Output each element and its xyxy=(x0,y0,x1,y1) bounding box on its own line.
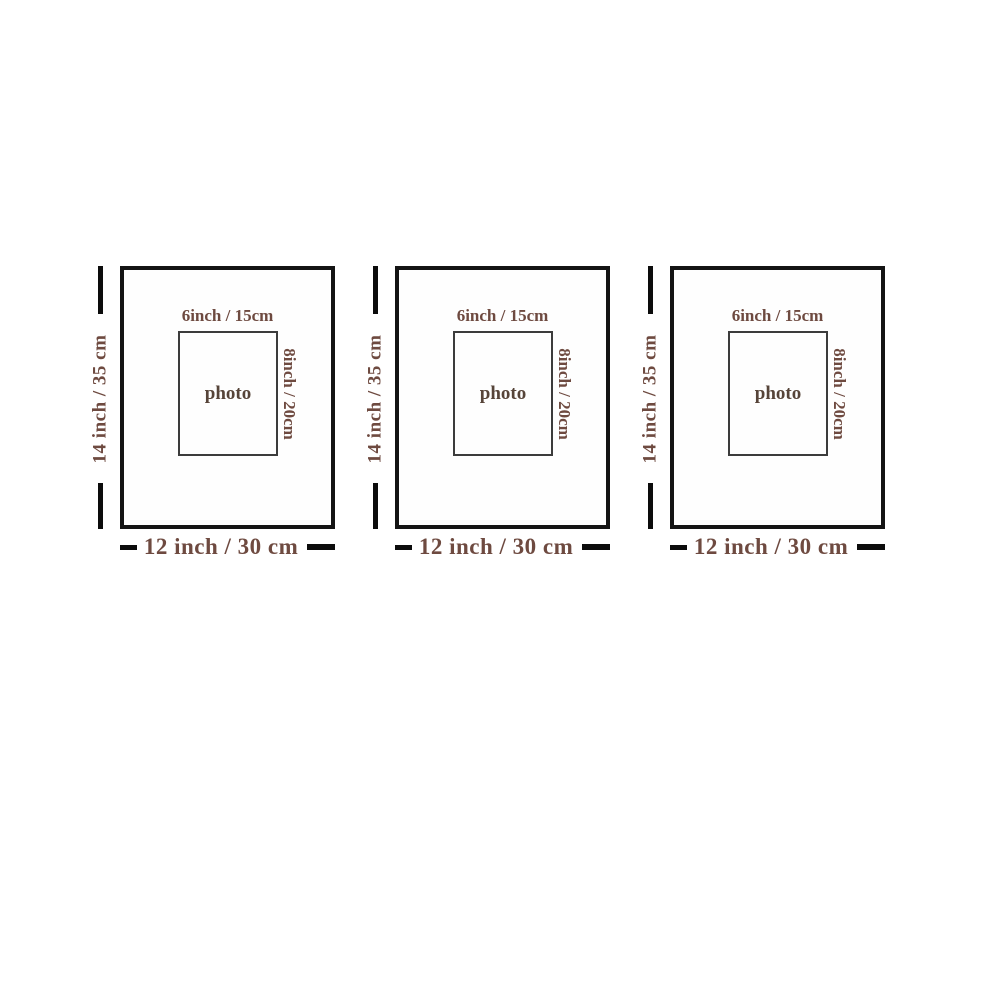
dimension-tick-bottom xyxy=(98,483,103,529)
dimension-dash-right xyxy=(582,544,610,550)
photo-label: photo xyxy=(480,383,526,405)
dimension-tick-top xyxy=(648,266,653,314)
opening-height-label: 8inch / 20cm xyxy=(829,348,849,440)
photo-label: photo xyxy=(755,383,801,405)
dimension-tick-bottom xyxy=(648,483,653,529)
opening-width-label: 6inch / 15cm xyxy=(124,306,331,326)
height-dimension-label: 14 inch / 35 cm xyxy=(364,334,386,463)
frame-diagram-unit-3: 14 inch / 35 cm 6inch / 15cm photo 8inch… xyxy=(638,266,885,560)
opening-width-label: 6inch / 15cm xyxy=(674,306,881,326)
mat-column: 6inch / 15cm photo 8inch / 20cm 12 inch … xyxy=(395,266,610,560)
mat-column: 6inch / 15cm photo 8inch / 20cm 12 inch … xyxy=(120,266,335,560)
dimension-dash-right xyxy=(857,544,885,550)
dimension-dash-left xyxy=(120,545,137,550)
width-dimension-label: 12 inch / 30 cm xyxy=(694,534,848,560)
width-dimension-indicator: 12 inch / 30 cm xyxy=(395,534,610,560)
dimension-tick-top xyxy=(373,266,378,314)
height-dimension-indicator: 14 inch / 35 cm xyxy=(88,266,112,529)
mat-board: 6inch / 15cm photo 8inch / 20cm xyxy=(120,266,335,529)
photo-opening: photo xyxy=(178,331,278,456)
photo-label: photo xyxy=(205,383,251,405)
opening-width-label: 6inch / 15cm xyxy=(399,306,606,326)
height-dimension-indicator: 14 inch / 35 cm xyxy=(638,266,662,529)
photo-opening: photo xyxy=(453,331,553,456)
width-dimension-indicator: 12 inch / 30 cm xyxy=(670,534,885,560)
height-dimension-label: 14 inch / 35 cm xyxy=(89,334,111,463)
mat-column: 6inch / 15cm photo 8inch / 20cm 12 inch … xyxy=(670,266,885,560)
photo-opening: photo xyxy=(728,331,828,456)
width-dimension-indicator: 12 inch / 30 cm xyxy=(120,534,335,560)
height-dimension-label: 14 inch / 35 cm xyxy=(639,334,661,463)
frame-diagram-unit-2: 14 inch / 35 cm 6inch / 15cm photo 8inch… xyxy=(363,266,610,560)
width-dimension-label: 12 inch / 30 cm xyxy=(144,534,298,560)
opening-height-label-area: 8inch / 20cm xyxy=(277,331,301,456)
width-dimension-label: 12 inch / 30 cm xyxy=(419,534,573,560)
opening-height-label: 8inch / 20cm xyxy=(279,348,299,440)
frame-diagram-row: 14 inch / 35 cm 6inch / 15cm photo 8inch… xyxy=(88,266,885,560)
opening-height-label-area: 8inch / 20cm xyxy=(552,331,576,456)
mat-board: 6inch / 15cm photo 8inch / 20cm xyxy=(395,266,610,529)
mat-board: 6inch / 15cm photo 8inch / 20cm xyxy=(670,266,885,529)
opening-height-label-area: 8inch / 20cm xyxy=(827,331,851,456)
dimension-dash-left xyxy=(670,545,687,550)
dimension-tick-top xyxy=(98,266,103,314)
height-dimension-indicator: 14 inch / 35 cm xyxy=(363,266,387,529)
product-diagram-canvas: 14 inch / 35 cm 6inch / 15cm photo 8inch… xyxy=(0,0,1000,1000)
dimension-dash-right xyxy=(307,544,335,550)
dimension-dash-left xyxy=(395,545,412,550)
frame-diagram-unit-1: 14 inch / 35 cm 6inch / 15cm photo 8inch… xyxy=(88,266,335,560)
opening-height-label: 8inch / 20cm xyxy=(554,348,574,440)
dimension-tick-bottom xyxy=(373,483,378,529)
